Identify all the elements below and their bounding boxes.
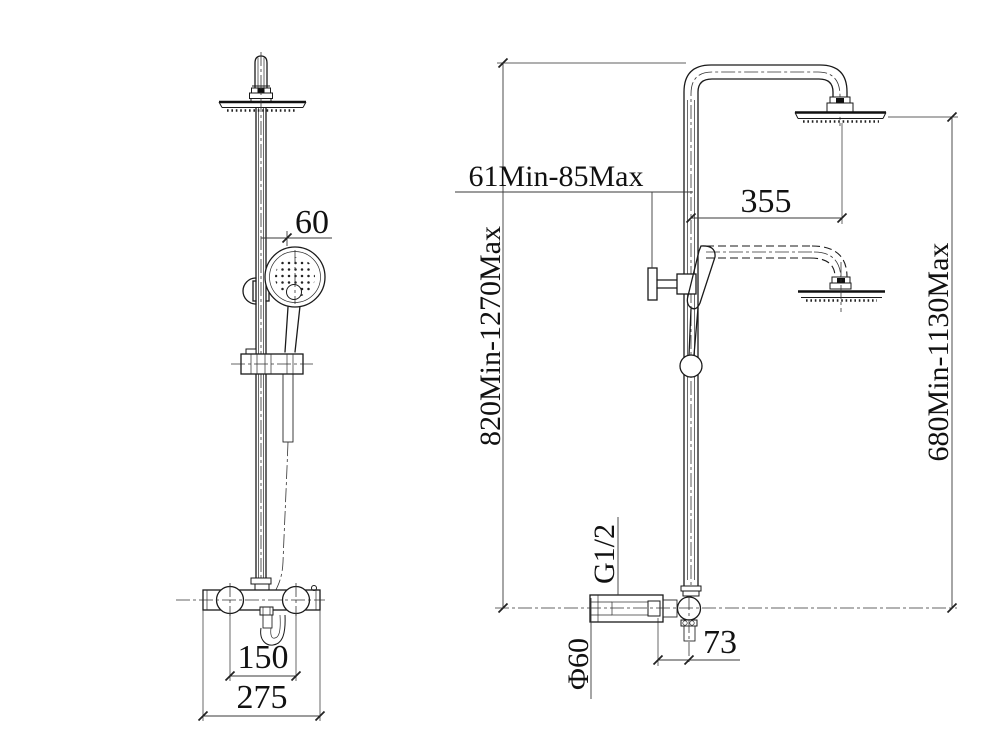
dim-inlet-thread: G1/2 <box>588 517 621 595</box>
dim-hand-shower-offset: 60 <box>261 204 332 246</box>
dim-g12-label: G1/2 <box>588 524 621 584</box>
front-view: 60 150 275 <box>176 52 332 721</box>
front-slider-bracket <box>231 349 313 374</box>
front-overhead-shower <box>219 56 306 111</box>
dim-column-height: 820Min-1270Max <box>474 59 686 613</box>
dim-61-85-label: 61Min-85Max <box>469 160 644 193</box>
side-view: 820Min-1270Max 61Min-85Max 355 680Min-11… <box>455 59 958 700</box>
dim-275-label: 275 <box>237 679 288 716</box>
side-overhead-shower-lower <box>706 246 885 312</box>
technical-drawing-shower-system: 60 150 275 <box>0 0 1000 734</box>
front-valve <box>176 578 325 628</box>
dim-arm-reach: 355 <box>687 123 847 224</box>
dim-680-label: 680Min-1130Max <box>922 243 955 462</box>
dim-phi60-label: Φ60 <box>562 638 595 690</box>
dim-lower-head-height: 680Min-1130Max <box>888 113 958 613</box>
dim-60-label: 60 <box>295 204 329 241</box>
dim-355-label: 355 <box>741 183 792 220</box>
side-overhead-shower-upper <box>795 97 886 122</box>
side-column <box>684 65 847 602</box>
dim-150-label: 150 <box>238 639 289 676</box>
dim-73-label: 73 <box>703 624 737 661</box>
drawing-svg: 60 150 275 <box>0 0 1000 734</box>
front-hand-shower <box>265 247 325 352</box>
dim-820-label: 820Min-1270Max <box>474 226 507 446</box>
